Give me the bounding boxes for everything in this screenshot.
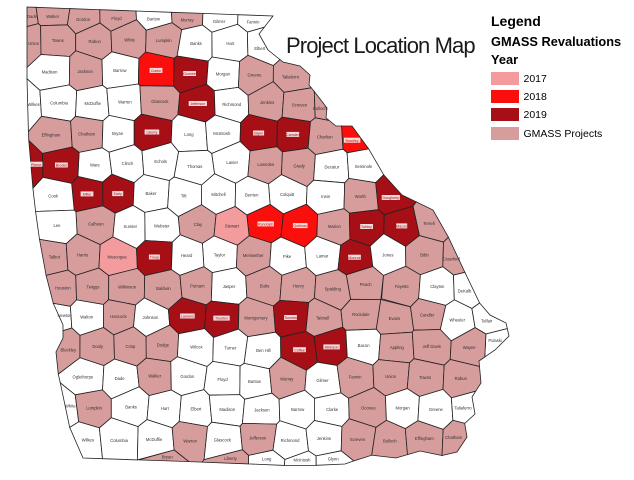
svg-text:Wilkinson: Wilkinson [118, 285, 137, 290]
svg-text:Brantley: Brantley [346, 139, 359, 143]
svg-text:Candler: Candler [420, 313, 435, 318]
svg-text:Gilmer: Gilmer [316, 378, 329, 383]
svg-text:Columbia: Columbia [50, 101, 68, 106]
svg-text:Miller: Miller [83, 193, 92, 197]
svg-text:Lanier: Lanier [226, 160, 238, 165]
svg-text:Warren: Warren [183, 439, 197, 444]
svg-text:Quitman: Quitman [293, 224, 307, 228]
svg-text:Murray: Murray [181, 18, 195, 23]
svg-text:Butts: Butts [260, 284, 270, 289]
svg-text:Screven: Screven [350, 437, 366, 442]
svg-text:Clarke: Clarke [326, 407, 339, 412]
svg-text:Jenkins: Jenkins [317, 436, 331, 441]
svg-text:Pulaski: Pulaski [488, 338, 502, 343]
svg-text:Talbot: Talbot [49, 254, 61, 259]
svg-text:Terrell: Terrell [423, 221, 434, 226]
svg-text:Jackson: Jackson [77, 69, 93, 74]
svg-text:McIntosh: McIntosh [294, 457, 312, 462]
svg-text:Clarke: Clarke [151, 69, 161, 73]
svg-text:Bryan: Bryan [112, 131, 124, 136]
svg-text:Cook: Cook [48, 193, 59, 198]
svg-text:White: White [65, 403, 76, 408]
svg-text:Tift: Tift [181, 194, 187, 199]
svg-text:Chatham: Chatham [445, 435, 463, 440]
svg-text:Bulloch: Bulloch [313, 106, 327, 111]
svg-text:Liberty: Liberty [147, 131, 158, 135]
svg-text:Bulloch: Bulloch [383, 438, 397, 443]
svg-text:Dooly: Dooly [92, 344, 104, 349]
svg-text:Grady: Grady [293, 163, 305, 168]
svg-text:DeKalb: DeKalb [458, 289, 472, 294]
svg-text:Oglethorpe: Oglethorpe [73, 375, 94, 380]
svg-text:Lumpkin: Lumpkin [86, 406, 102, 411]
svg-text:Meriwether: Meriwether [243, 253, 264, 258]
svg-text:Tattnall: Tattnall [316, 316, 329, 321]
svg-text:Jenkins: Jenkins [260, 100, 274, 105]
svg-text:Bartow: Bartow [248, 379, 262, 384]
svg-text:Calhoun: Calhoun [88, 222, 104, 227]
svg-text:Dodge: Dodge [157, 342, 170, 347]
svg-text:Hart: Hart [161, 406, 170, 411]
svg-text:Twiggs: Twiggs [86, 284, 99, 289]
svg-text:Effingham: Effingham [415, 436, 434, 441]
svg-text:McDuffie: McDuffie [146, 437, 163, 442]
svg-text:Macon: Macon [396, 225, 407, 229]
svg-text:Walton: Walton [80, 314, 94, 319]
svg-text:Hancock: Hancock [110, 314, 127, 319]
svg-text:Union: Union [28, 41, 40, 46]
svg-text:Glascock: Glascock [214, 438, 232, 443]
svg-text:Wilcox: Wilcox [190, 344, 203, 349]
svg-text:Banks: Banks [125, 405, 137, 410]
svg-text:Jones: Jones [382, 253, 393, 258]
svg-text:Hart: Hart [226, 41, 235, 46]
svg-text:Lee: Lee [54, 223, 62, 228]
svg-text:Montgomery: Montgomery [244, 316, 268, 321]
svg-text:Marion: Marion [328, 224, 341, 229]
svg-text:Fayette: Fayette [395, 284, 410, 289]
svg-text:Union: Union [385, 374, 397, 379]
svg-text:Colquitt: Colquitt [280, 192, 295, 197]
svg-text:Stewart: Stewart [225, 224, 240, 229]
svg-text:Taylor: Taylor [214, 252, 226, 257]
svg-text:Glynn: Glynn [328, 456, 340, 461]
svg-text:Barrow: Barrow [291, 407, 305, 412]
svg-text:Morgan: Morgan [395, 406, 410, 411]
svg-text:Camden: Camden [286, 133, 300, 137]
svg-text:Dade: Dade [115, 376, 126, 381]
svg-text:Berrien: Berrien [245, 193, 259, 198]
svg-text:Telfair: Telfair [481, 318, 493, 323]
svg-text:Lumpkin: Lumpkin [156, 38, 172, 43]
svg-text:Sumter: Sumter [124, 224, 138, 229]
svg-text:Columbia: Columbia [110, 438, 128, 443]
svg-text:Ware: Ware [90, 163, 101, 168]
svg-text:Rockdale: Rockdale [352, 312, 370, 317]
svg-text:Jackson: Jackson [254, 408, 270, 413]
svg-text:Floyd: Floyd [111, 16, 122, 21]
svg-text:Taliaferro: Taliaferro [282, 75, 300, 80]
svg-text:Echols: Echols [154, 159, 167, 164]
svg-text:Newton: Newton [57, 313, 72, 318]
svg-text:Muscogee: Muscogee [108, 255, 128, 260]
svg-text:Fannin: Fannin [247, 20, 260, 25]
svg-text:Banks: Banks [190, 41, 202, 46]
svg-text:Gordon: Gordon [76, 17, 91, 22]
svg-text:Worth: Worth [355, 194, 367, 199]
svg-text:Bibb: Bibb [420, 253, 429, 258]
svg-text:Peach: Peach [360, 282, 373, 287]
svg-text:Atkinson: Atkinson [325, 346, 339, 350]
svg-text:Bryan: Bryan [162, 455, 174, 460]
svg-text:Barrow: Barrow [113, 68, 127, 73]
svg-text:Long: Long [184, 132, 194, 137]
svg-text:Greene: Greene [429, 407, 444, 412]
svg-text:Thomas: Thomas [187, 164, 202, 169]
svg-text:Fannin: Fannin [349, 375, 362, 380]
svg-text:Pierce: Pierce [31, 163, 41, 167]
svg-text:Jasper: Jasper [223, 284, 236, 289]
svg-text:Wayne: Wayne [463, 345, 477, 350]
svg-text:Floyd: Floyd [217, 377, 228, 382]
svg-text:Glynn: Glynn [254, 132, 263, 136]
svg-text:White: White [124, 38, 135, 43]
svg-text:Madison: Madison [219, 407, 235, 412]
svg-text:Elbert: Elbert [191, 406, 203, 411]
svg-text:Wilkes: Wilkes [27, 102, 39, 107]
svg-text:Johnson: Johnson [142, 315, 159, 320]
svg-text:Lowndes: Lowndes [257, 162, 274, 167]
svg-text:Jeff Davis: Jeff Davis [423, 344, 441, 349]
svg-text:Richmond: Richmond [281, 438, 301, 443]
svg-text:Bartow: Bartow [147, 17, 161, 22]
svg-text:Turner: Turner [224, 346, 237, 351]
svg-text:Ben Hill: Ben Hill [256, 348, 270, 353]
svg-text:Dougherty: Dougherty [383, 196, 400, 200]
svg-text:Wheeler: Wheeler [449, 318, 465, 323]
svg-text:Houston: Houston [55, 285, 71, 290]
svg-text:Effingham: Effingham [42, 132, 61, 137]
svg-text:Heard: Heard [181, 253, 193, 258]
svg-text:Treutlen: Treutlen [215, 317, 228, 321]
svg-text:Rabun: Rabun [455, 376, 468, 381]
svg-text:Rabun: Rabun [89, 39, 102, 44]
svg-text:Towns: Towns [52, 38, 64, 43]
svg-text:Morgan: Morgan [216, 72, 231, 77]
svg-text:Bacon: Bacon [358, 343, 371, 348]
svg-text:Clayton: Clayton [430, 284, 445, 289]
svg-text:Bleckley: Bleckley [61, 347, 77, 352]
svg-text:Warren: Warren [118, 100, 132, 105]
svg-text:Murray: Murray [280, 376, 294, 381]
svg-text:Harris: Harris [77, 253, 88, 258]
svg-text:Baker: Baker [146, 191, 158, 196]
svg-text:Wilkes: Wilkes [82, 438, 94, 443]
svg-text:Jefferson: Jefferson [249, 435, 267, 440]
svg-text:Webster: Webster [154, 223, 170, 228]
svg-text:Pike: Pike [283, 254, 292, 259]
svg-text:Towns: Towns [419, 375, 431, 380]
svg-text:Early: Early [114, 192, 122, 196]
svg-text:Mitchell: Mitchell [211, 192, 225, 197]
svg-text:Gordon: Gordon [180, 374, 195, 379]
svg-text:Walker: Walker [148, 374, 161, 379]
svg-text:Henry: Henry [293, 284, 305, 289]
svg-text:Clay: Clay [194, 222, 203, 227]
svg-text:Oconee: Oconee [183, 72, 196, 76]
svg-text:Schley: Schley [361, 225, 372, 229]
svg-text:Taliaferro: Taliaferro [454, 405, 472, 410]
svg-text:Long: Long [262, 456, 272, 461]
svg-text:Troup: Troup [150, 256, 159, 260]
svg-text:Jefferson: Jefferson [190, 102, 205, 106]
svg-text:Monroe: Monroe [348, 256, 360, 260]
svg-text:Laurens: Laurens [181, 315, 194, 319]
svg-text:Elbert: Elbert [254, 46, 266, 51]
svg-text:Baldwin: Baldwin [156, 286, 171, 291]
svg-text:McIntosh: McIntosh [213, 131, 231, 136]
svg-text:Spalding: Spalding [325, 287, 342, 292]
svg-text:Irwin: Irwin [321, 194, 331, 199]
svg-text:Seminole: Seminole [355, 164, 373, 169]
svg-text:Lamar: Lamar [316, 254, 328, 259]
svg-text:Putnam: Putnam [190, 283, 205, 288]
svg-text:Brooks: Brooks [56, 164, 67, 168]
svg-text:Dade: Dade [27, 14, 38, 19]
svg-text:Crawford: Crawford [443, 257, 461, 262]
svg-text:Appling: Appling [390, 345, 405, 350]
svg-text:Coffee: Coffee [294, 348, 305, 352]
svg-text:Madison: Madison [42, 69, 58, 74]
svg-text:Randolph: Randolph [258, 223, 273, 227]
svg-text:Chatham: Chatham [78, 132, 96, 137]
svg-text:Liberty: Liberty [224, 456, 237, 461]
svg-text:Walker: Walker [46, 14, 59, 19]
svg-text:Gilmer: Gilmer [213, 19, 226, 24]
svg-text:Decatur: Decatur [324, 164, 339, 169]
svg-text:Clinch: Clinch [122, 161, 134, 166]
svg-text:McDuffie: McDuffie [84, 101, 101, 106]
svg-text:Greene: Greene [248, 72, 263, 77]
svg-text:Evans: Evans [389, 316, 401, 321]
svg-text:Oconee: Oconee [361, 405, 376, 410]
svg-text:Glascock: Glascock [151, 99, 169, 104]
svg-text:Screven: Screven [292, 103, 308, 108]
svg-text:Richmond: Richmond [222, 102, 242, 107]
svg-text:Toombs: Toombs [284, 316, 297, 320]
svg-text:Charlton: Charlton [317, 134, 333, 139]
svg-text:Crisp: Crisp [126, 344, 136, 349]
